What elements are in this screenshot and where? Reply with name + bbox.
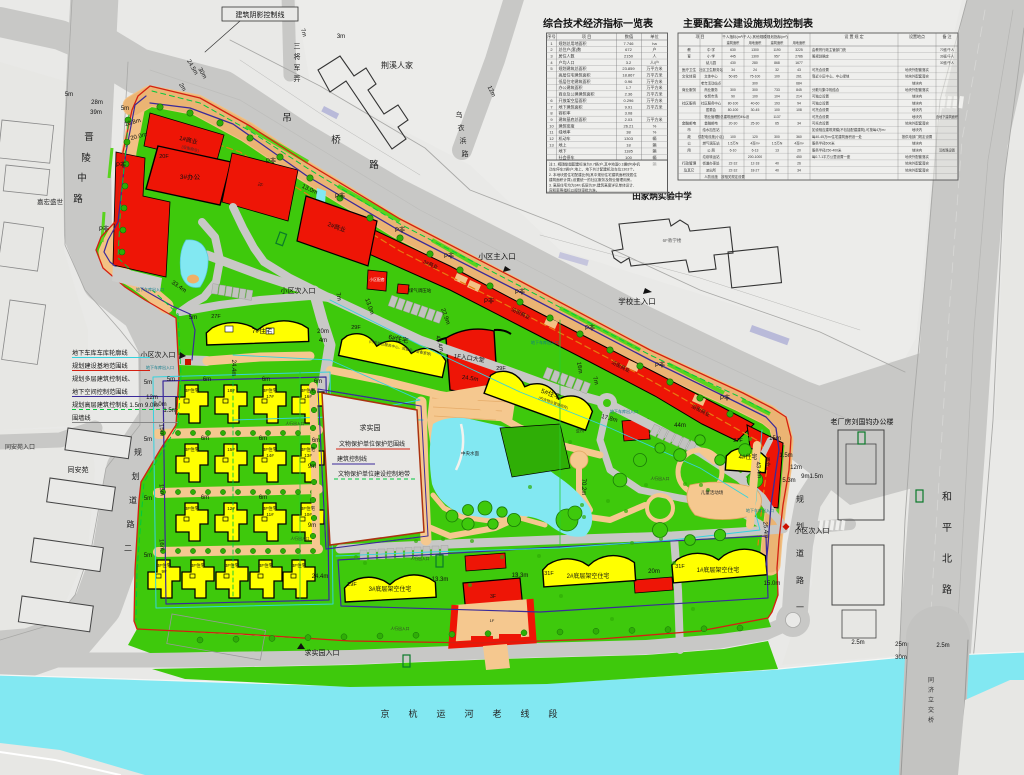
svg-text:100: 100 [730, 135, 736, 139]
svg-text:14#: 14# [266, 453, 274, 458]
svg-text:人行出入口: 人行出入口 [391, 626, 410, 631]
svg-text:P非: P非 [484, 297, 494, 305]
svg-text:30-45: 30-45 [751, 108, 760, 112]
svg-text:12: 12 [549, 136, 554, 141]
svg-text:规划建筑总面积: 规划建筑总面积 [559, 65, 587, 71]
svg-text:地块内: 地块内 [912, 141, 923, 146]
svg-text:可托合设置: 可托合设置 [812, 67, 830, 72]
svg-text:二: 二 [124, 544, 132, 553]
svg-text:绿地率: 绿地率 [559, 129, 571, 135]
svg-text:学校主入口: 学校主入口 [618, 296, 656, 306]
svg-text:万平方米: 万平方米 [647, 65, 663, 71]
svg-text:居住人数: 居住人数 [559, 52, 575, 58]
svg-text:道: 道 [129, 495, 137, 505]
svg-text:16m: 16m [157, 539, 164, 551]
svg-text:社区服务中心: 社区服务中心 [701, 100, 722, 105]
svg-text:31F: 31F [544, 571, 554, 577]
svg-text:地下车库出入口: 地下车库出入口 [146, 364, 174, 370]
svg-text:辆: 辆 [653, 141, 657, 147]
svg-text:地块内: 地块内 [912, 94, 923, 99]
svg-text:20m: 20m [648, 569, 660, 575]
svg-text:老年活动站点: 老年活动站点 [701, 80, 722, 85]
svg-text:12m: 12m [146, 395, 158, 401]
svg-text:75-100: 75-100 [750, 75, 761, 79]
svg-text:公: 公 [687, 141, 691, 146]
svg-text:27F: 27F [211, 314, 221, 320]
svg-text:5m: 5m [144, 496, 152, 502]
svg-text:26: 26 [797, 162, 801, 166]
svg-text:2.03: 2.03 [625, 117, 634, 122]
svg-text:人/户: 人/户 [650, 59, 659, 65]
svg-text:38: 38 [626, 130, 631, 135]
svg-text:15.0m: 15.0m [764, 581, 781, 587]
svg-text:建筑面积: 建筑面积 [771, 40, 785, 45]
svg-text:3#办公: 3#办公 [180, 172, 201, 181]
svg-text:建筑面积计算),设置统一的社区服务及物业管理用房。: 建筑面积计算),设置统一的社区服务及物业管理用房。 [549, 177, 634, 182]
svg-text:地块外配套落实: 地块外配套落实 [905, 167, 929, 172]
svg-text:39班/千人: 39班/千人 [940, 54, 955, 59]
svg-text:机动车: 机动车 [559, 135, 571, 141]
svg-text:300: 300 [774, 135, 780, 139]
svg-text:684: 684 [796, 81, 802, 85]
svg-text:划: 划 [132, 471, 140, 481]
svg-text:地下车库出入口: 地下车库出入口 [610, 408, 638, 414]
svg-text:24.4m: 24.4m [312, 574, 329, 580]
svg-text:5m: 5m [144, 437, 152, 443]
svg-text:商业服务: 商业服务 [682, 87, 697, 92]
svg-text:运: 运 [436, 709, 445, 719]
svg-text:34: 34 [797, 168, 801, 172]
svg-text:用地面积: 用地面积 [793, 40, 807, 45]
svg-text:34: 34 [797, 122, 801, 126]
svg-text:地上: 地上 [559, 141, 567, 147]
svg-text:按相关规定设置: 按相关规定设置 [721, 174, 745, 179]
svg-text:段: 段 [548, 708, 557, 719]
svg-text:15#: 15# [227, 447, 235, 452]
svg-text:同: 同 [928, 677, 934, 684]
svg-text:193: 193 [774, 101, 780, 105]
svg-text:20-30: 20-30 [729, 122, 738, 126]
svg-text:100: 100 [774, 108, 780, 112]
svg-text:服务半径500米: 服务半径500米 [812, 141, 835, 146]
svg-text:18-27: 18-27 [751, 168, 760, 172]
svg-text:容积率等指标以规划审批为准。: 容积率等指标以规划审批为准。 [549, 188, 599, 193]
svg-text:6m: 6m [262, 377, 270, 383]
svg-text:0.96: 0.96 [625, 79, 634, 84]
svg-text:13#: 13# [304, 453, 312, 458]
svg-text:综合技术经济指标一览表: 综合技术经济指标一览表 [543, 17, 654, 30]
svg-text:道: 道 [796, 548, 804, 558]
svg-text:30班/千人: 30班/千人 [940, 60, 955, 65]
svg-text:弄: 弄 [294, 75, 301, 83]
svg-text:26.21: 26.21 [623, 123, 634, 128]
svg-text:13: 13 [775, 148, 779, 152]
svg-text:可独立设置: 可独立设置 [812, 94, 830, 99]
svg-text:3m: 3m [337, 34, 345, 40]
svg-text:630: 630 [730, 48, 736, 52]
svg-text:北: 北 [942, 553, 952, 565]
svg-text:每40-45万m²住宅建筑面积设一处: 每40-45万m²住宅建筑面积设一处 [812, 134, 863, 139]
svg-text:44m: 44m [674, 423, 686, 429]
svg-text:6-10: 6-10 [730, 148, 737, 152]
svg-text:京: 京 [380, 708, 389, 719]
svg-text:主要配套公建设施规划控制表: 主要配套公建设施规划控制表 [683, 17, 814, 30]
svg-text:2. 本地块居住宅配建比例(其中规划住宅建筑面积按居住: 2. 本地块居住宅配建比例(其中规划住宅建筑面积按居住 [549, 172, 637, 177]
svg-text:3. 高层住宅均为34F,低层为3F,建筑高度详见单体设计,: 3. 高层住宅均为34F,低层为3F,建筑高度详见单体设计, [549, 182, 634, 187]
svg-text:用: 用 [687, 147, 691, 152]
svg-text:序号: 序号 [547, 33, 555, 40]
svg-text:P非: P非 [116, 161, 126, 169]
svg-text:3F住宅: 3F住宅 [301, 505, 316, 511]
svg-text:2.5m: 2.5m [936, 643, 949, 649]
svg-text:2.36: 2.36 [625, 92, 634, 97]
svg-text:容积率: 容积率 [559, 110, 571, 116]
svg-text:规划高层建筑控制线 1.5m 9.0m: 规划高层建筑控制线 1.5m 9.0m [72, 401, 159, 409]
svg-text:地块外配套落实: 地块外配套落实 [905, 87, 929, 92]
svg-text:沿街路设置: 沿街路设置 [939, 147, 955, 152]
svg-text:120: 120 [752, 135, 758, 139]
svg-text:供配电设施(小区): 供配电设施(小区) [698, 134, 724, 139]
svg-text:垃圾转运站: 垃圾转运站 [703, 154, 721, 159]
svg-text:立: 立 [928, 696, 934, 704]
svg-text:13: 13 [549, 142, 554, 147]
svg-text:公 厕: 公 厕 [707, 148, 715, 152]
svg-text:29F: 29F [496, 366, 506, 372]
svg-text:40: 40 [775, 162, 779, 166]
svg-text:9m: 9m [308, 464, 316, 470]
svg-text:P非: P非 [395, 226, 405, 234]
svg-text:陵: 陵 [81, 153, 91, 164]
svg-text:16#: 16# [304, 394, 312, 399]
svg-text:和: 和 [942, 491, 952, 503]
svg-text:文化体育: 文化体育 [682, 74, 697, 79]
svg-text:老厂房刘国钧办公楼: 老厂房刘国钧办公楼 [831, 417, 894, 426]
svg-text:P非: P非 [515, 288, 525, 296]
svg-text:规: 规 [796, 494, 804, 504]
svg-text:100: 100 [774, 75, 780, 79]
svg-text:杭: 杭 [408, 708, 417, 719]
svg-text:10: 10 [549, 123, 554, 128]
svg-text:每0.7-1平方公里设置一座: 每0.7-1平方公里设置一座 [812, 154, 851, 159]
svg-text:路: 路 [369, 159, 379, 171]
svg-text:给水加压站: 给水加压站 [703, 127, 721, 132]
svg-text:P非: P非 [585, 324, 595, 332]
svg-text:线: 线 [520, 708, 529, 719]
svg-text:108: 108 [796, 108, 802, 112]
svg-text:乌: 乌 [456, 110, 463, 119]
svg-text:70.2m: 70.2m [580, 479, 586, 496]
svg-text:1137: 1137 [773, 115, 780, 119]
svg-text:18: 18 [626, 142, 631, 147]
svg-text:3F住宅: 3F住宅 [191, 562, 206, 568]
svg-text:360: 360 [796, 135, 802, 139]
svg-text:由教育行政主管部门统: 由教育行政主管部门统 [812, 47, 847, 52]
svg-text:万平方米: 万平方米 [647, 91, 663, 97]
svg-text:39m: 39m [90, 110, 102, 116]
svg-text:规划建设基地范围线: 规划建设基地范围线 [72, 362, 128, 370]
svg-text:文物保护单位建设控制地带: 文物保护单位建设控制地带 [338, 470, 410, 478]
svg-text:幼儿园: 幼儿园 [706, 60, 717, 65]
svg-text:11#: 11# [266, 512, 274, 517]
svg-text:求实园入口: 求实园入口 [305, 648, 340, 657]
svg-text:5m: 5m [65, 92, 73, 98]
svg-text:儿童活动场: 儿童活动场 [701, 489, 724, 496]
svg-text:总住户(套)数: 总住户(套)数 [559, 46, 582, 52]
svg-text:靠近小区中心、中心绿地: 靠近小区中心、中心绿地 [812, 74, 850, 79]
svg-text:交: 交 [928, 706, 934, 714]
svg-text:会所: 会所 [576, 427, 584, 434]
svg-text:24: 24 [753, 68, 757, 72]
svg-text:3225: 3225 [795, 48, 803, 52]
svg-text:5m: 5m [144, 553, 152, 559]
svg-text:注:1. 机动车位配建标准为0.7辆/户,其中地面0.1辆/: 注:1. 机动车位配建标准为0.7辆/户,其中地面0.1辆/户;非机 [549, 162, 640, 167]
svg-text:地下车库出入口: 地下车库出入口 [746, 507, 774, 513]
svg-text:3F住宅: 3F住宅 [301, 387, 316, 393]
svg-text:煤气调压站: 煤气调压站 [409, 287, 432, 294]
svg-text:1300: 1300 [751, 48, 759, 52]
svg-text:可独立设置: 可独立设置 [812, 100, 830, 105]
svg-text:地下车库出入口: 地下车库出入口 [531, 339, 559, 345]
svg-text:0.296: 0.296 [623, 98, 634, 103]
svg-text:人: 人 [653, 53, 657, 58]
svg-text:户均人口: 户均人口 [559, 59, 575, 65]
svg-text:备 注: 备 注 [942, 33, 951, 39]
svg-text:育: 育 [687, 54, 691, 59]
svg-text:20: 20 [797, 148, 801, 152]
svg-text:P非: P非 [335, 192, 345, 200]
svg-text:地块内: 地块内 [912, 80, 923, 85]
svg-text:辆: 辆 [653, 154, 657, 160]
svg-text:1F: 1F [490, 618, 495, 623]
svg-text:社会停车: 社会停车 [559, 154, 575, 160]
svg-text:小区次入口: 小区次入口 [281, 286, 316, 295]
svg-text:20m: 20m [317, 329, 329, 335]
svg-text:3F住宅: 3F住宅 [225, 562, 240, 568]
svg-text:3.2: 3.2 [626, 60, 632, 65]
svg-text:25-30: 25-30 [751, 122, 760, 126]
svg-text:动车停车2辆/户;地上、地下共计配建机动车位1303个。: 动车停车2辆/户;地上、地下共计配建机动车位1303个。 [549, 167, 636, 172]
svg-text:214: 214 [796, 95, 802, 99]
svg-text:15m: 15m [769, 436, 781, 442]
svg-text:6m: 6m [314, 379, 322, 385]
svg-text:1.5m: 1.5m [163, 408, 176, 414]
svg-text:万平方米: 万平方米 [647, 103, 663, 109]
svg-text:小区主入口: 小区主入口 [478, 251, 516, 261]
svg-text:可托合设置: 可托合设置 [812, 114, 830, 119]
svg-text:3F住宅: 3F住宅 [157, 562, 172, 568]
svg-text:2150: 2150 [624, 53, 634, 58]
svg-text:地块内: 地块内 [912, 100, 923, 105]
svg-text:450: 450 [796, 155, 802, 159]
svg-text:6m: 6m [201, 436, 209, 442]
svg-text:地块内: 地块内 [912, 147, 923, 152]
svg-text:1#底层架空住宅: 1#底层架空住宅 [697, 566, 740, 574]
svg-text:40-60: 40-60 [751, 101, 760, 105]
svg-text:高层住宅建筑面积: 高层住宅建筑面积 [559, 72, 591, 78]
svg-text:9m: 9m [308, 523, 316, 529]
svg-text:50-85: 50-85 [729, 75, 738, 79]
svg-text:20F: 20F [159, 154, 169, 160]
svg-text:万平方米: 万平方米 [647, 116, 663, 122]
svg-text:建筑基底总面积: 建筑基底总面积 [559, 116, 587, 122]
svg-text:小区配套: 小区配套 [369, 277, 384, 282]
svg-text:1303: 1303 [624, 136, 634, 141]
svg-text:5m: 5m [121, 106, 129, 112]
svg-text:7.746: 7.746 [623, 41, 634, 46]
svg-text:建筑阴影控制线: 建筑阴影控制线 [236, 10, 285, 19]
svg-text:445: 445 [730, 55, 736, 59]
svg-text:3F住宅: 3F住宅 [185, 387, 200, 393]
svg-text:含地下建筑面积: 含地下建筑面积 [936, 114, 959, 119]
svg-text:5m: 5m [167, 377, 175, 383]
svg-text:人行出入口: 人行出入口 [411, 556, 430, 561]
svg-text:27F: 27F [733, 438, 743, 444]
svg-text:4百m³: 4百m³ [794, 142, 804, 146]
svg-text:1190: 1190 [773, 48, 780, 52]
svg-text:12#: 12# [227, 506, 235, 511]
svg-text:数值: 数值 [625, 33, 633, 40]
svg-text:32: 32 [775, 68, 779, 72]
svg-text:万平方米: 万平方米 [647, 78, 663, 84]
svg-text:6m: 6m [203, 377, 211, 383]
svg-text:6F教学楼: 6F教学楼 [663, 237, 682, 244]
svg-text:P非: P非 [444, 252, 454, 260]
svg-text:17#: 17# [266, 394, 274, 399]
svg-text:千人指标(m²/千人) 其他规模规划指标(m²): 千人指标(m²/千人) 其他规模规划指标(m²) [722, 34, 787, 39]
svg-text:7#住宅: 7#住宅 [252, 326, 273, 335]
svg-text:1.5万N: 1.5万N [728, 142, 739, 146]
svg-text:100: 100 [752, 95, 758, 99]
svg-text:可托合设置: 可托合设置 [812, 107, 830, 112]
svg-text:40: 40 [775, 168, 779, 172]
svg-text:104: 104 [774, 95, 780, 99]
svg-text:280: 280 [752, 61, 758, 65]
svg-text:地块外配套落实: 地块外配套落实 [905, 161, 929, 166]
svg-text:12-18: 12-18 [751, 162, 760, 166]
svg-text:3F: 3F [490, 594, 496, 600]
svg-text:1.7: 1.7 [626, 85, 632, 90]
svg-text:6m: 6m [259, 495, 267, 501]
svg-text:43: 43 [797, 68, 801, 72]
svg-text:1677: 1677 [795, 61, 803, 65]
svg-text:按供电部门规定设置: 按供电部门规定设置 [902, 134, 933, 139]
svg-text:18.867: 18.867 [622, 73, 635, 78]
svg-text:2786: 2786 [795, 55, 803, 59]
svg-text:街道办事处: 街道办事处 [703, 161, 721, 166]
svg-text:规划多层建筑控制线、: 规划多层建筑控制线、 [72, 375, 134, 383]
svg-text:服务半径250-400米: 服务半径250-400米 [812, 147, 842, 152]
svg-text:晋: 晋 [84, 132, 94, 143]
svg-text:30m: 30m [895, 655, 907, 661]
svg-text:31F: 31F [675, 564, 685, 570]
svg-text:3F住宅: 3F住宅 [292, 562, 307, 568]
svg-text:6m: 6m [201, 495, 209, 501]
svg-text:P非: P非 [266, 157, 276, 165]
svg-text:地块内: 地块内 [912, 107, 923, 112]
svg-text:地下车库出入口: 地下车库出入口 [136, 286, 164, 292]
svg-text:6-13: 6-13 [752, 148, 759, 152]
svg-text:建筑面积: 建筑面积 [727, 40, 741, 45]
svg-text:商业服务: 商业服务 [704, 87, 718, 92]
svg-text:300: 300 [752, 81, 758, 85]
svg-text:地块内: 地块内 [912, 127, 923, 132]
svg-text:90: 90 [731, 95, 735, 99]
svg-text:22-32: 22-32 [729, 168, 738, 172]
svg-text:4#住宅: 4#住宅 [739, 453, 758, 461]
svg-text:如设相应建筑规模(不包括配建建筑),可按每4万m²: 如设相应建筑规模(不包括配建建筑),可按每4万m² [812, 127, 886, 132]
svg-text:一: 一 [796, 603, 804, 612]
svg-text:12m: 12m [790, 465, 802, 471]
svg-text:1185: 1185 [624, 149, 633, 154]
svg-text:1.5m: 1.5m [779, 453, 792, 459]
svg-text:3F住宅: 3F住宅 [263, 446, 278, 452]
svg-text:%: % [653, 130, 657, 135]
svg-text:地下车库车库轮廓线: 地下车库车库轮廓线 [72, 349, 128, 357]
svg-text:4m: 4m [319, 338, 327, 344]
svg-text:文物保护单位保护范围线: 文物保护单位保护范围线 [339, 440, 405, 448]
svg-text:15m: 15m [157, 424, 164, 436]
svg-text:1300: 1300 [751, 55, 759, 59]
svg-text:34: 34 [731, 68, 735, 72]
svg-text:路: 路 [796, 575, 804, 585]
svg-text:29F: 29F [347, 582, 357, 588]
svg-text:商业: 商业 [764, 457, 772, 468]
svg-text:3F住宅: 3F住宅 [301, 446, 316, 452]
svg-text:地块外配套落实: 地块外配套落实 [905, 74, 929, 79]
svg-text:%: % [653, 123, 657, 128]
svg-text:社区卫生服务站: 社区卫生服务站 [699, 67, 723, 72]
svg-text:按总建筑面积的4‰设: 按总建筑面积的4‰设 [717, 114, 750, 119]
svg-text:居委会: 居委会 [706, 107, 717, 112]
svg-text:嘉宏盛世: 嘉宏盛世 [37, 197, 64, 206]
svg-text:3F住宅: 3F住宅 [185, 505, 200, 511]
svg-text:浜: 浜 [460, 136, 467, 145]
svg-text:3.08: 3.08 [625, 111, 634, 116]
svg-text:老: 老 [492, 708, 501, 719]
svg-text:办公建筑面积: 办公建筑面积 [559, 84, 583, 90]
svg-text:行政管理: 行政管理 [682, 161, 697, 166]
svg-text:市: 市 [687, 127, 691, 132]
svg-text:设 置 规 定: 设 置 规 定 [844, 33, 863, 39]
svg-text:地下建筑面积: 地下建筑面积 [559, 103, 583, 109]
svg-text:建筑控制线: 建筑控制线 [337, 455, 367, 463]
svg-text:燃气调压站: 燃气调压站 [703, 141, 721, 146]
svg-text:农贸市场: 农贸市场 [704, 94, 718, 99]
svg-text:小区次入口: 小区次入口 [795, 526, 830, 535]
svg-text:文体中心: 文体中心 [704, 74, 718, 79]
svg-text:地下: 地下 [559, 148, 567, 154]
svg-text:万平方米: 万平方米 [647, 72, 663, 78]
svg-text:23.859: 23.859 [622, 66, 635, 71]
svg-text:求实园: 求实园 [360, 423, 381, 432]
svg-text:筹规划确定: 筹规划确定 [812, 54, 830, 59]
svg-text:规: 规 [134, 447, 142, 457]
svg-text:规划总用地面积: 规划总用地面积 [559, 40, 587, 46]
svg-text:300: 300 [730, 88, 736, 92]
svg-text:将: 将 [294, 52, 301, 61]
svg-text:地块外配套落实: 地块外配套落实 [905, 121, 929, 126]
svg-text:P非: P非 [655, 361, 665, 369]
svg-text:地下空间控制范围线: 地下空间控制范围线 [72, 388, 128, 396]
svg-text:261: 261 [796, 75, 802, 79]
svg-text:政: 政 [687, 134, 691, 139]
svg-text:社区服务: 社区服务 [682, 100, 697, 105]
svg-text:济: 济 [928, 686, 934, 694]
svg-text:P非: P非 [99, 225, 109, 233]
svg-text:吊: 吊 [282, 113, 292, 124]
svg-text:29F: 29F [351, 325, 361, 331]
svg-text:用地面积: 用地面积 [749, 40, 763, 45]
